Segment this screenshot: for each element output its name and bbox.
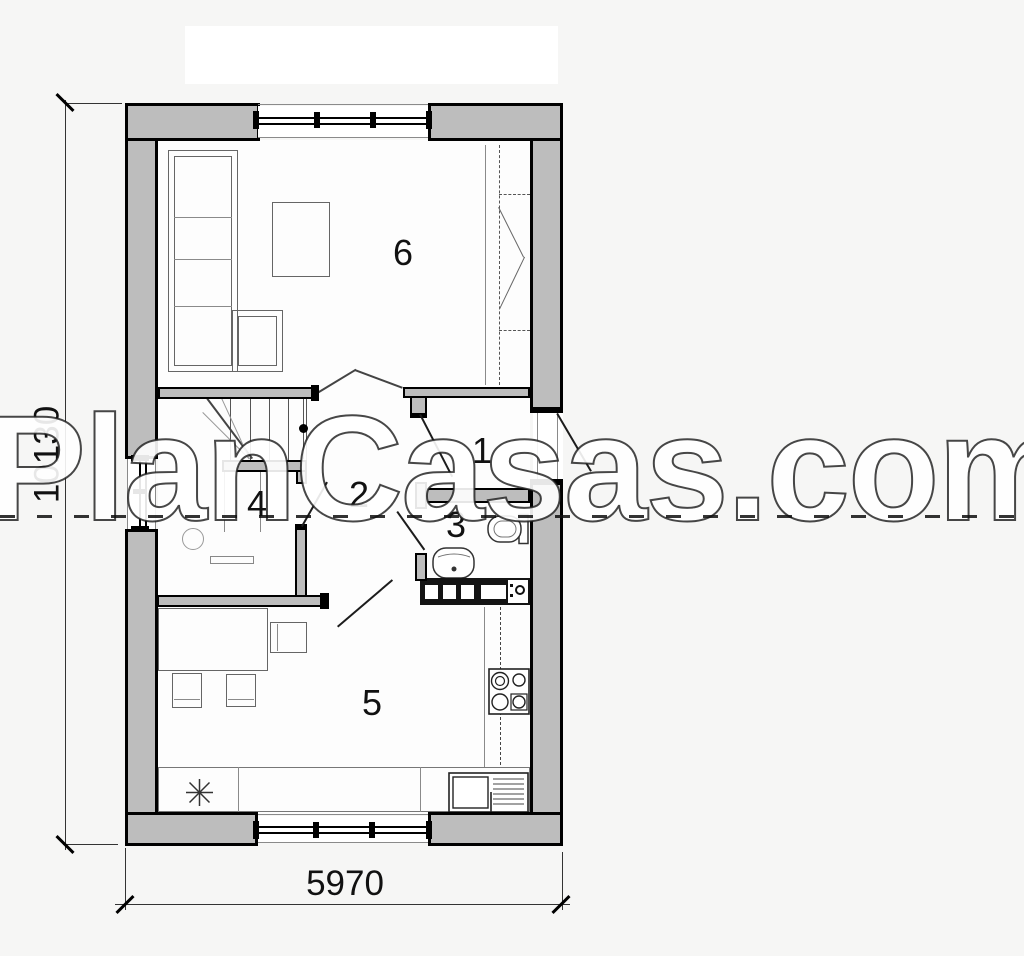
coffee-table-icon [272,202,330,277]
desk-icon [210,556,254,564]
wardrobe-front-line [485,145,486,385]
star-appliance-icon [185,778,214,807]
wardrobe-dashed-line [499,145,500,385]
window-bottom-outer-line [258,814,428,815]
stove-icon [488,668,530,715]
wall-end-cap [320,593,329,609]
window-bottom-cap-right [426,821,432,839]
counter-square [443,585,456,599]
window-top-outer-line [258,104,428,105]
watermark-text: PlanCasas.com [0,393,1024,543]
window-bottom-mullion [313,822,319,838]
window-top-mullion [314,112,320,128]
chair-back-line [277,624,278,651]
blank-strip [185,26,558,84]
extension-line [65,103,122,104]
wall-top-left [125,103,260,141]
wall-left-lower [125,529,158,815]
window-bottom-inner-line [258,842,428,843]
sofa-chaise-inner [238,316,277,366]
dimension-text-horizontal: 5970 [290,866,400,901]
window-top-inner-line [258,137,428,138]
wall-right-upper [530,138,563,413]
counter-slot [481,585,506,599]
window-bottom-cap-left [253,821,259,839]
sofa-cushion-line [174,259,232,260]
chair-back-line [174,699,200,700]
counter-divider [420,767,421,812]
room-label-6: 6 [393,235,413,271]
chair-icon [270,622,307,653]
sofa-cushion-line [174,217,232,218]
window-top-cap-right [426,111,432,129]
kitchen-sink-icon [448,772,529,813]
dining-table-icon [158,608,268,671]
wall-bottom-left [125,812,258,846]
dimension-line-horizontal [115,904,570,905]
wardrobe-dashed-shelf [499,194,530,195]
sofa-inner-line [174,156,232,366]
washing-machine-icon [508,580,528,603]
chair-back-line [228,699,254,700]
floor-plan-canvas: 6 1 2 3 4 5 10130 5970 PlanCasas.com [0,0,1024,956]
chair-icon [172,673,202,708]
chair-icon [226,674,256,707]
extension-line [63,844,118,845]
counter-square [425,585,438,599]
bath-door-jamb-lower [415,553,427,581]
window-bottom-glass [258,826,428,834]
washing-machine-counter [420,578,530,605]
counter-divider [238,767,239,812]
wall-bottom-right [428,812,563,846]
kitchen-counter-edge [484,607,485,767]
window-bottom-mullion [369,822,375,838]
window-top-cap-left [253,111,259,129]
window-top-glass [258,117,428,125]
wardrobe-dashed-shelf [499,330,530,331]
wall-top-right [428,103,563,141]
window-top-mullion [370,112,376,128]
counter-square [461,585,474,599]
interior-wall-room5-top [157,595,328,607]
watermark-dashed-underline [0,515,1024,518]
sofa-cushion-line [174,306,232,307]
room-label-5: 5 [362,685,382,721]
